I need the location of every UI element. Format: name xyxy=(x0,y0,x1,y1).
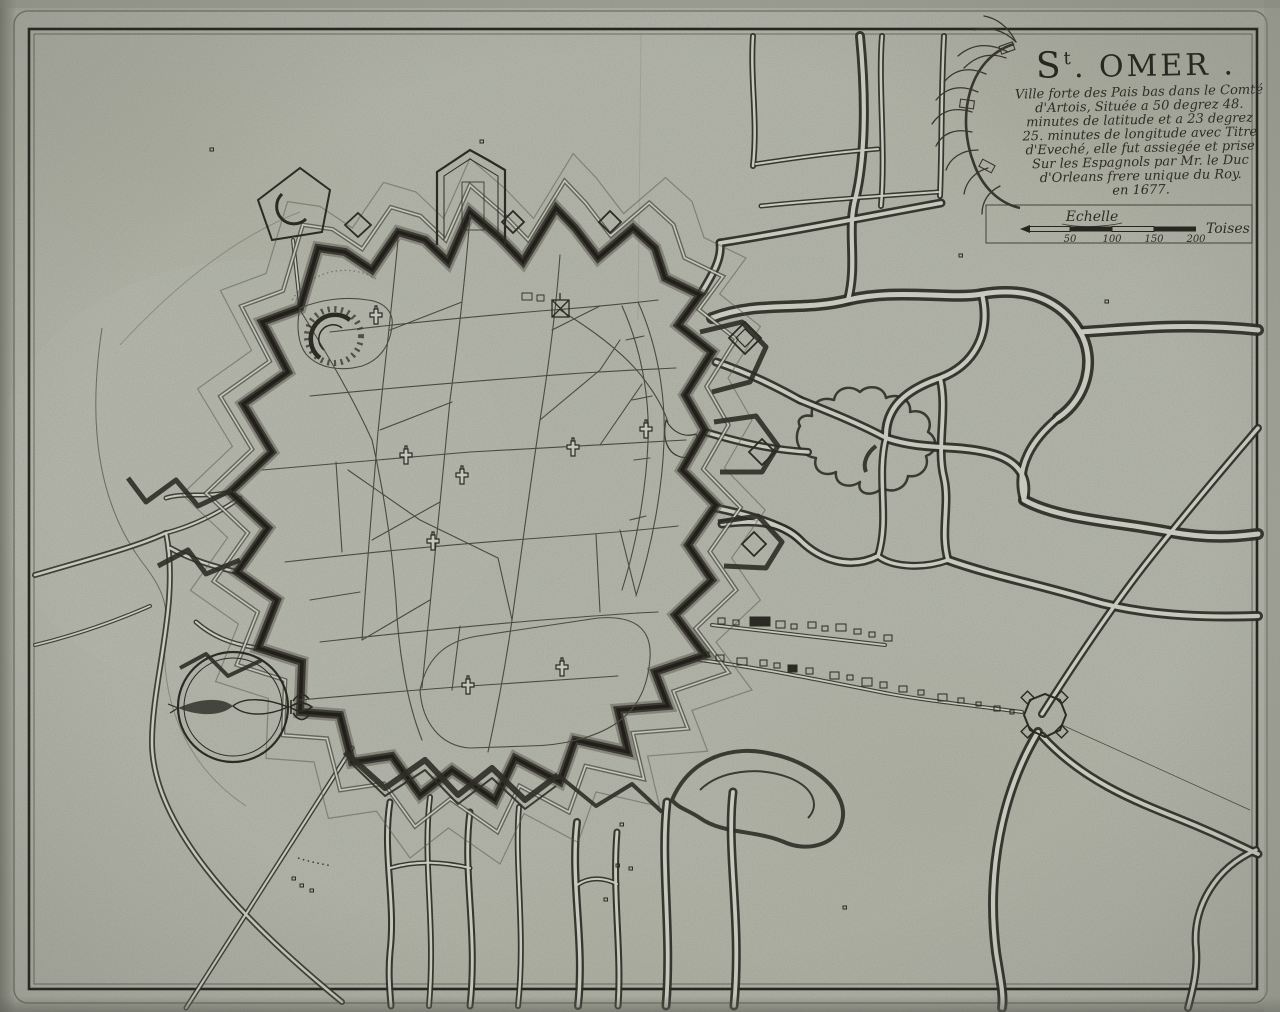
scan-edges xyxy=(0,0,1280,1012)
map-engraving: St. OMER . Ville forte des Pais bas dans… xyxy=(0,0,1280,1012)
antique-map-scan: St. OMER . Ville forte des Pais bas dans… xyxy=(0,0,1280,1012)
